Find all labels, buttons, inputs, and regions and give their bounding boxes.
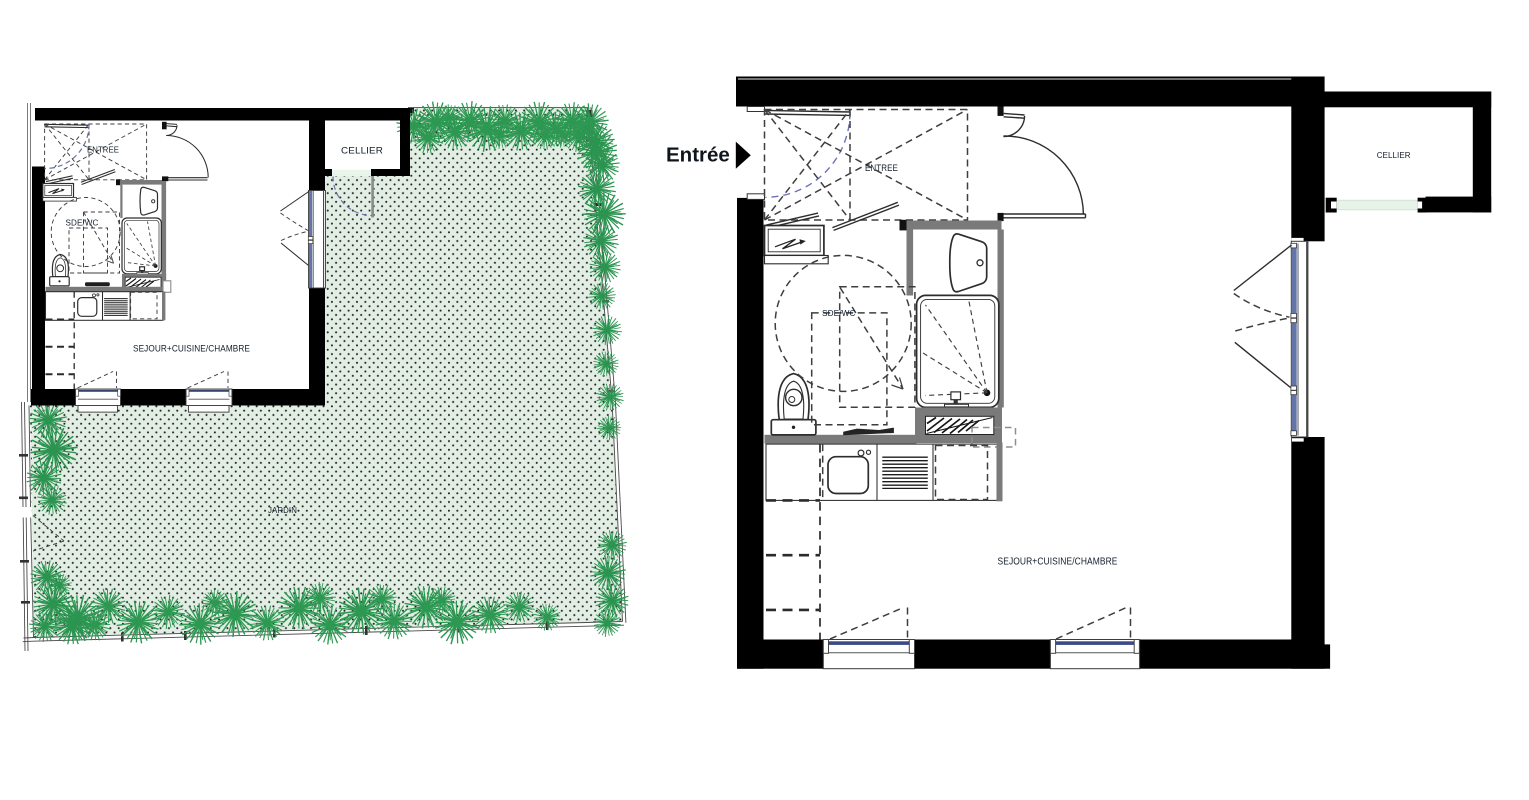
svg-text:JARDIN: JARDIN (268, 506, 297, 515)
svg-text:SEJOUR+CUISINE/CHAMBRE: SEJOUR+CUISINE/CHAMBRE (998, 557, 1118, 568)
svg-text:ENTREE: ENTREE (87, 145, 119, 155)
svg-text:SDE/WC: SDE/WC (66, 218, 99, 227)
svg-text:Entrée: Entrée (666, 144, 730, 167)
svg-text:SDE/WC: SDE/WC (822, 308, 856, 318)
svg-text:SEJOUR+CUISINE/CHAMBRE: SEJOUR+CUISINE/CHAMBRE (133, 343, 250, 354)
svg-text:CELLIER: CELLIER (341, 145, 383, 155)
svg-text:CELLIER: CELLIER (1377, 151, 1411, 160)
svg-text:ENTREE: ENTREE (865, 163, 898, 173)
